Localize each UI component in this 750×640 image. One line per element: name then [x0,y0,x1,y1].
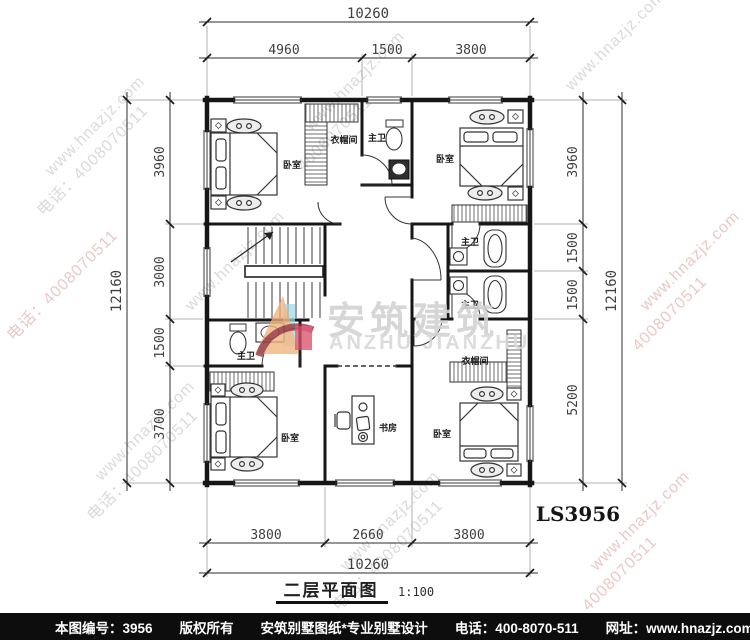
room-label-cloakroom-1: 衣帽间 [330,134,357,145]
floor-plan-drawing: 10260 4960 1500 3800 3800 2660 3800 1026… [0,0,750,612]
plan-scale: 1:100 [398,585,434,599]
staircase [231,227,323,318]
dim-right-seg2: 1500 [566,279,581,310]
dim-bottom-seg0: 3800 [250,528,281,543]
dim-left-total: 12160 [109,270,125,312]
footer-website: 网址：www.hnazjz.com [606,617,750,637]
dim-bottom-seg2: 3800 [453,528,484,543]
room-label-bedroom-3: 卧室 [281,432,299,443]
dim-bottom-total: 10260 [347,557,389,573]
dim-left-seg1: 3000 [153,256,168,287]
dim-right-seg3: 5200 [566,384,581,415]
footer-copyright: 版权所有 [180,617,234,637]
dim-top-total: 10260 [347,6,389,22]
bed-top-left [211,119,277,210]
dim-right-seg1: 1500 [566,232,581,263]
plan-title: 二层平面图 [284,581,379,600]
room-label-bedroom-4: 卧室 [433,428,451,439]
footer-bar: 本图编号：3956 版权所有 安筑别墅图纸*专业别墅设计 电话：400-8070… [0,613,750,640]
room-label-bedroom-1: 卧室 [283,159,301,170]
room-label-cloakroom-2: 衣帽间 [461,355,488,366]
room-label-study: 书房 [379,422,397,433]
footer-sheet-number: 本图编号：3956 [55,617,153,637]
bed-top-right [460,110,523,200]
dim-right-seg0: 3960 [566,146,581,177]
stair-handrail [245,266,323,277]
plan-title-underline [276,601,388,604]
dim-right-total: 12160 [604,270,620,312]
bath-top [386,120,409,179]
room-label-masterbath-3: 主卫 [461,299,479,310]
dimension-lines [127,22,622,573]
floor-plan-page: www.hnazjz.com 电话：4008070511 www.hnazjz.… [0,0,750,640]
dimension-ticks [123,18,626,577]
study-desk [335,396,374,444]
dimension-labels: 10260 4960 1500 3800 3800 2660 3800 1026… [109,6,620,573]
footer-brand: 安筑别墅图纸*专业别墅设计 [261,617,428,637]
room-label-masterbath-2: 主卫 [461,236,479,247]
dim-left-seg2: 1500 [153,327,168,358]
room-label-bedroom-2: 卧室 [436,153,454,164]
room-label-masterbath-1: 主卫 [368,132,386,143]
bed-bottom-left [211,383,277,471]
dim-left-seg0: 3960 [153,146,168,177]
stair-direction-arrow [231,232,273,262]
dim-left-seg3: 3700 [153,408,168,439]
plan-code: LS3956 [536,502,620,526]
bath-bottom-left [230,323,284,354]
dim-top-seg1: 1500 [371,43,402,58]
bed-bottom-right [460,387,521,477]
dim-bottom-seg1: 2660 [352,528,383,543]
extension-lines [122,26,627,577]
room-label-masterbath-4: 主卫 [237,350,255,361]
dim-top-seg0: 4960 [268,43,299,58]
footer-phone: 电话：400-8070-511 [455,617,579,637]
dim-top-seg2: 3800 [455,43,486,58]
